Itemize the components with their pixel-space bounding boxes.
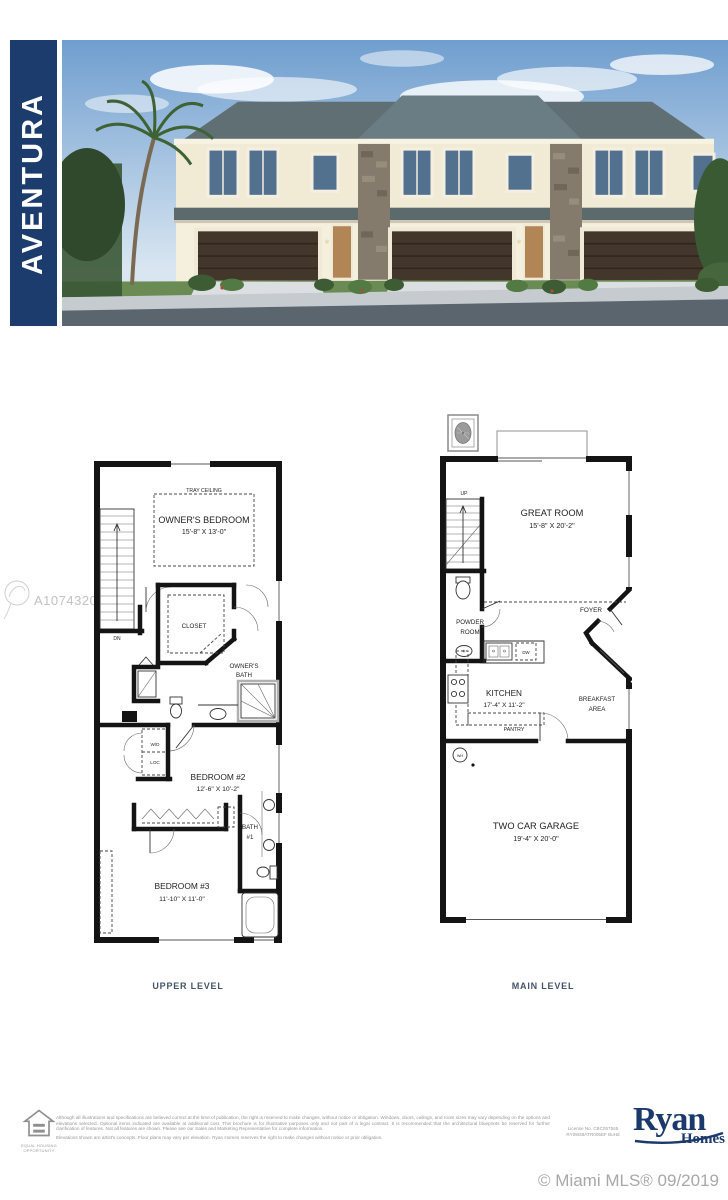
dw-label: DW — [522, 650, 530, 655]
brand-name-homes: Homes — [681, 1131, 725, 1148]
loc-label: LOC — [150, 760, 160, 765]
toilet-icon — [456, 577, 470, 599]
townhome-rendering-photo — [62, 40, 728, 326]
great-room-dims: 15'-8" X 20'-2" — [529, 521, 575, 530]
upper-level-caption: UPPER LEVEL — [94, 981, 282, 991]
mls-watermark-logo-icon — [2, 578, 34, 622]
ac-unit-icon — [448, 415, 478, 451]
owners-bedroom-label: OWNER'S BEDROOM — [158, 515, 249, 525]
license-code: RY09GBATR005EF BuHd — [552, 1132, 634, 1138]
disclaimer-paragraph-2: Elevations shown are artist's concepts. … — [56, 1135, 550, 1141]
upper-level-floor-plan: DN TRAY CEILING OWNER'S BEDROOM 15'-8" X… — [94, 461, 282, 943]
stairs-dn-label: DN — [113, 636, 121, 642]
garage-door-marker — [466, 917, 606, 923]
toilet-icon — [170, 697, 182, 718]
bedroom2-dims: 12'-6" X 10'-2" — [197, 786, 241, 793]
mls-watermark: A10743204 — [2, 578, 105, 622]
license-block: License No. CBC057565 RY09GBATR005EF BuH… — [552, 1126, 634, 1138]
foyer-label: FOYER — [580, 607, 602, 614]
owners-bedroom-dims: 15'-8" X 13'-0" — [182, 529, 227, 536]
closet-label: CLOSET — [182, 623, 207, 630]
owners-bath-label-2: BATH — [236, 672, 252, 679]
bedroom3-label: BEDROOM #3 — [155, 881, 210, 891]
main-level-caption: MAIN LEVEL — [440, 981, 646, 991]
plan-name-banner: AVENTURA — [10, 40, 57, 326]
powder-room-label-2: ROOM — [460, 629, 479, 636]
patio-outline — [497, 431, 587, 459]
breakfast-area-label-1: BREAKFAST — [579, 696, 616, 703]
owners-bath-label-1: OWNER'S — [229, 663, 258, 670]
wh-label: WH — [457, 754, 464, 758]
bedroom2-label: BEDROOM #2 — [191, 772, 246, 782]
equal-housing-caption: EQUAL HOUSING OPPORTUNITY — [16, 1144, 62, 1153]
great-room-label: GREAT ROOM — [521, 508, 584, 518]
plan-title: AVENTURA — [17, 92, 50, 275]
equal-housing-house-icon — [22, 1108, 56, 1138]
shower-icon — [238, 681, 278, 721]
range-icon — [448, 675, 468, 703]
garage-label: TWO CAR GARAGE — [493, 821, 579, 831]
garage-doors — [194, 227, 708, 282]
ryan-homes-logo: Ryan Homes — [633, 1104, 725, 1154]
wd-label: W/D — [151, 742, 161, 747]
bathtub-icon — [242, 893, 278, 937]
kitchen-dims: 17'-4" X 11'-2" — [483, 702, 525, 709]
mls-copyright: © Miami MLS® 09/2019 — [538, 1171, 719, 1191]
brochure-page: AVENTURA — [0, 0, 728, 1200]
bath1-label-2: #1 — [247, 834, 254, 841]
bedroom3-dims: 11'-10" X 11'-0" — [159, 896, 205, 903]
disclaimer-paragraph-1: Although all illustrations and specifica… — [56, 1115, 550, 1132]
stairs-up-label: UP — [461, 491, 469, 497]
townhome-building — [174, 96, 714, 282]
tray-ceiling-label: TRAY CEILING — [186, 488, 222, 494]
pantry-label: PANTRY — [504, 727, 525, 733]
chase-wall — [122, 711, 137, 722]
breakfast-area-label-2: AREA — [589, 706, 607, 713]
bath1-label-1: BATH — [242, 824, 258, 831]
kitchen-label: KITCHEN — [486, 689, 522, 698]
main-level-floor-plan: UP GREAT ROOM 15'-8" X 20'-2" — [440, 413, 632, 923]
garage-dims: 19'-4" X 20'-0" — [513, 834, 559, 843]
powder-room-label-1: POWDER — [456, 619, 484, 626]
disclaimer-text: Although all illustrations and specifica… — [56, 1115, 550, 1143]
